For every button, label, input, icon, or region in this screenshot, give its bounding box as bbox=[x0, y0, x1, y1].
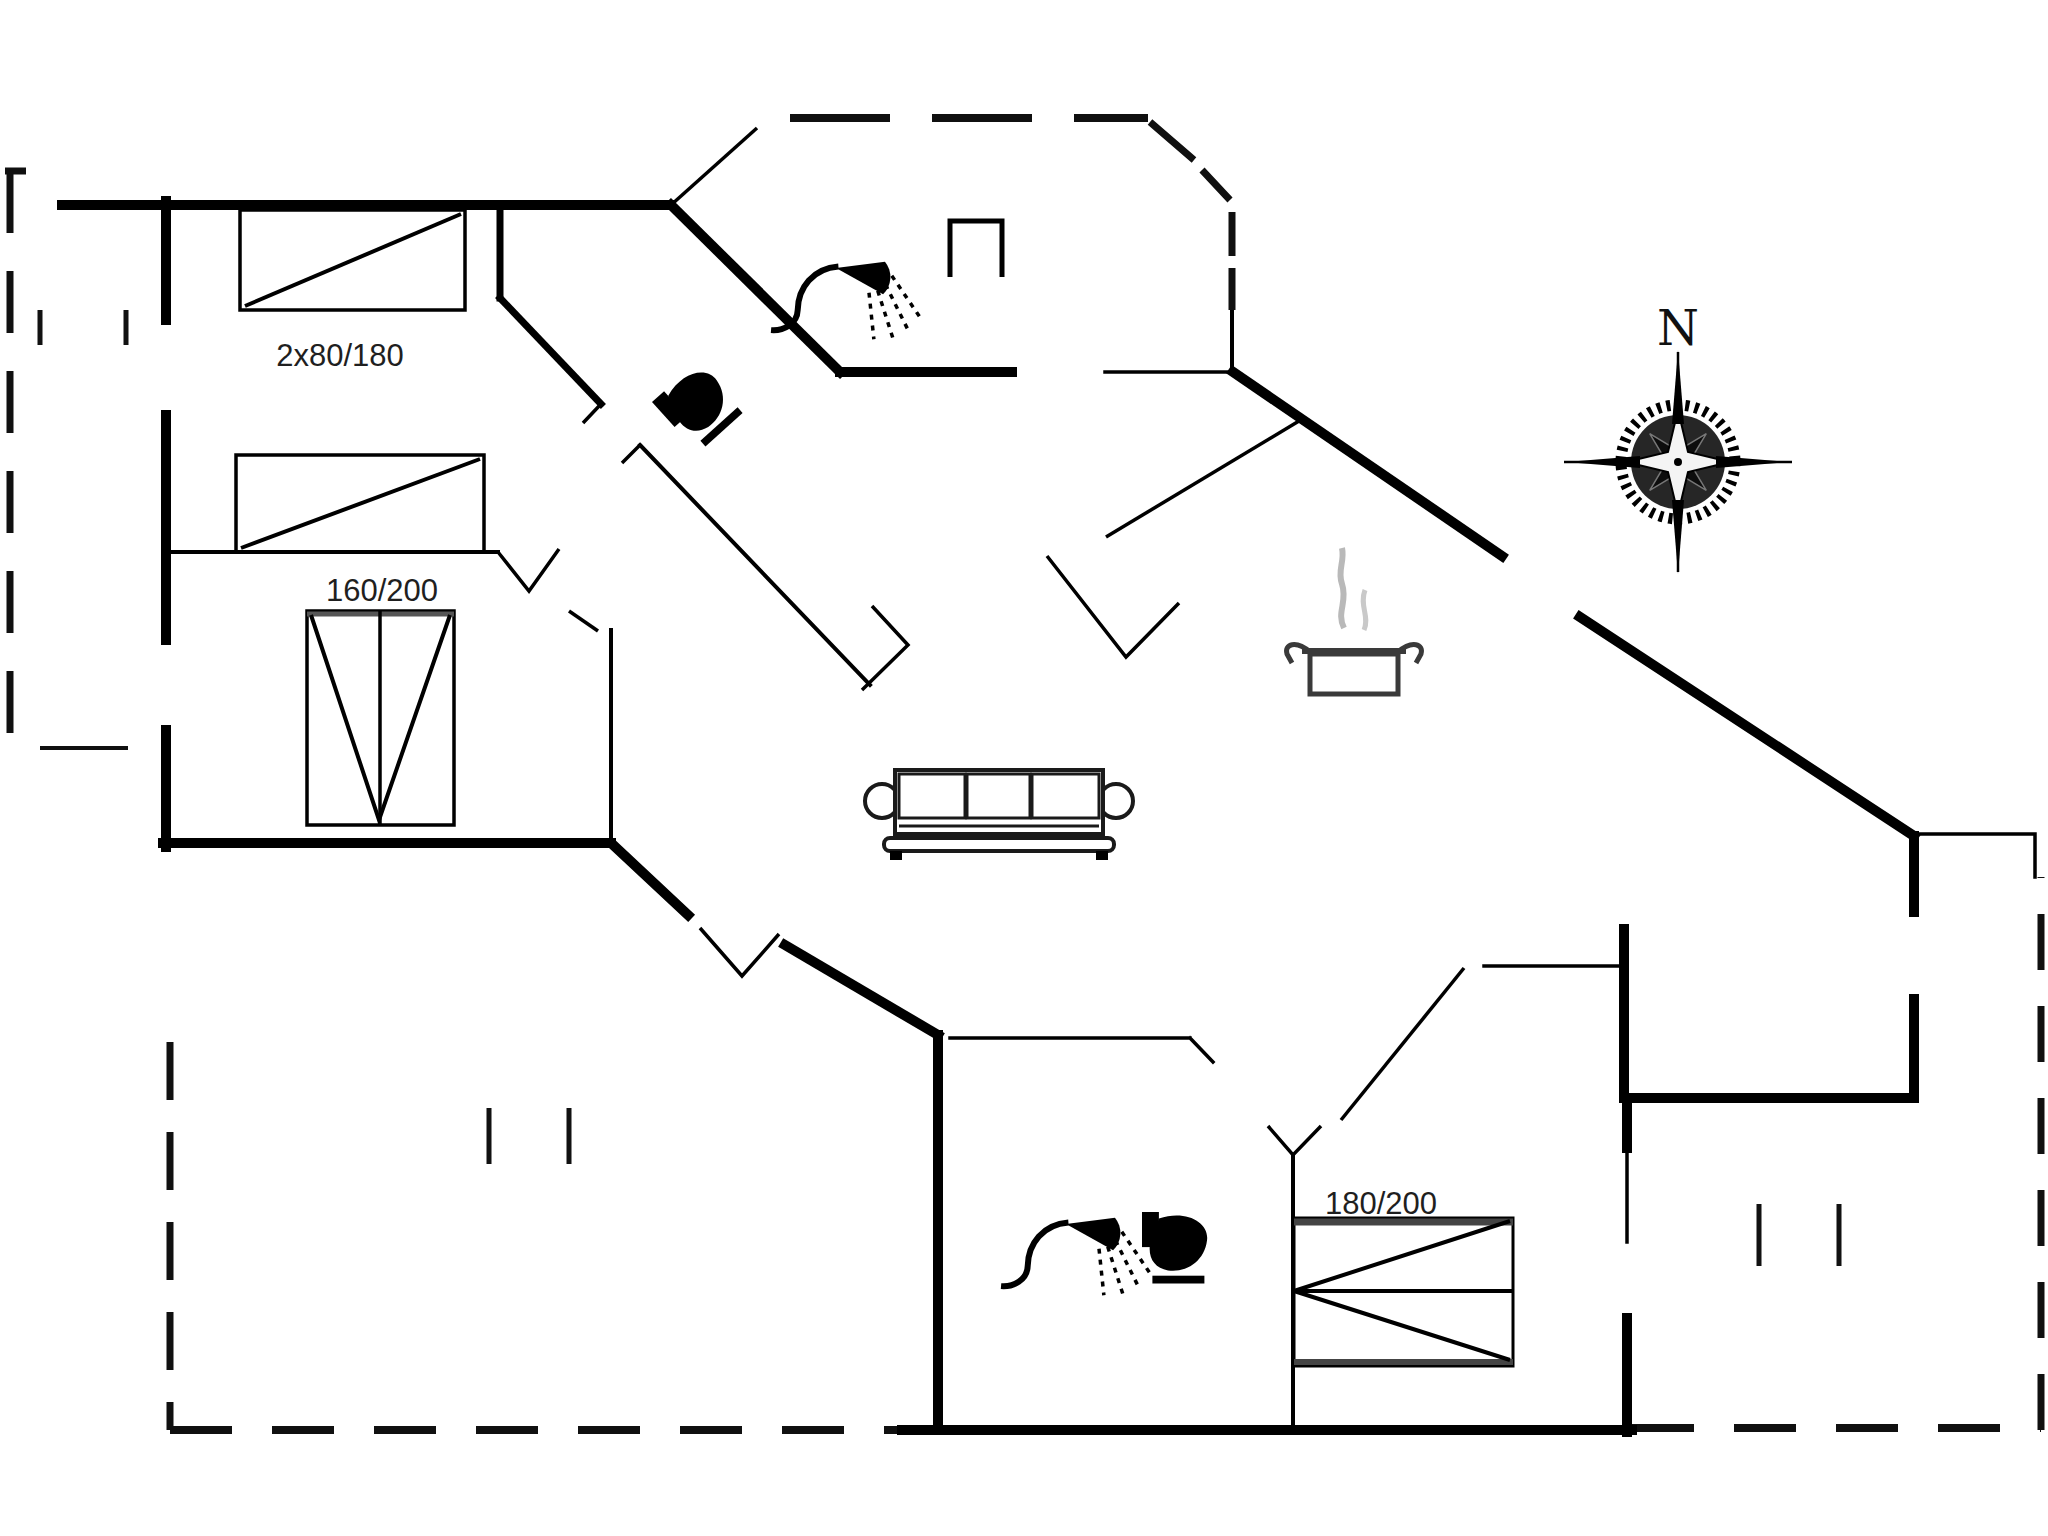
bed-label-2x80-180: 2x80/180 bbox=[276, 338, 404, 373]
door-swing-marks bbox=[498, 128, 1464, 1155]
double-bed-160x200 bbox=[307, 611, 454, 825]
sofa-icon bbox=[865, 770, 1133, 860]
cooking-pot-icon bbox=[1287, 548, 1422, 694]
double-bed-2x80-180 bbox=[240, 210, 465, 310]
bed-label-180-200: 180/200 bbox=[1325, 1186, 1437, 1221]
shower-icon-lower-bath bbox=[1001, 1195, 1162, 1321]
fireplace-icon bbox=[950, 221, 1002, 277]
floor-plan-page: 2x80/180 160/200 180/200 N bbox=[0, 0, 2048, 1536]
toilet-icon-lower-bath bbox=[1142, 1212, 1207, 1284]
double-bed-180x200 bbox=[1294, 1218, 1513, 1366]
compass-rose-icon bbox=[1564, 350, 1792, 574]
single-bed bbox=[236, 455, 484, 552]
toilet-icon-upper-bath bbox=[652, 360, 745, 453]
floor-plan-canvas: 2x80/180 160/200 180/200 N bbox=[0, 0, 2048, 1536]
shower-icon-upper-bath bbox=[771, 239, 932, 365]
compass-north-label: N bbox=[1657, 300, 1699, 356]
bed-label-160-200: 160/200 bbox=[326, 573, 438, 608]
